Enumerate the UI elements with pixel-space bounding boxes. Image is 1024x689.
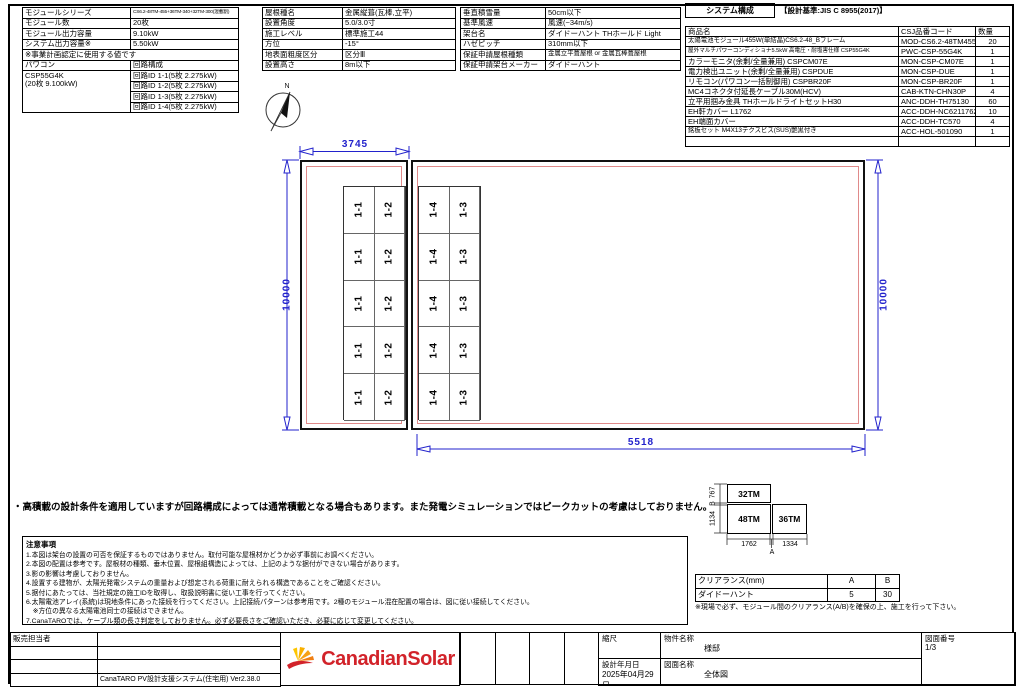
module-info-label: モジュール出力容量 [23, 29, 131, 40]
product-name [686, 137, 899, 147]
module-circuit-label: 1-4 [428, 202, 439, 218]
install-info-label: 基準風速 [461, 19, 546, 30]
module-circuit-label: 1-2 [384, 249, 395, 265]
csj-code: ACC-DDH-TC570 [899, 117, 976, 127]
clearance-dim-1762: 1762 [733, 541, 765, 548]
module-info-value: 20枚 [131, 19, 239, 30]
circuit-row: 回路ID 1-4(5枚 2.275kW) [131, 103, 239, 114]
clearance-value-a: 5 [828, 589, 876, 603]
dim-bottom-label: 5518 [612, 437, 670, 448]
clearance-gap-a-label: A [767, 549, 777, 556]
module-cell: 1-4 [419, 234, 450, 281]
csj-code: MON-CSP-CM07E [899, 57, 976, 67]
design-standard-label: 【設計基準:JIS C 8955(2017)】 [780, 5, 887, 16]
clearance-box-32tm: 32TM [727, 484, 771, 503]
dim-right-label: 10000 [879, 270, 890, 320]
module-cell: 1-1 [344, 281, 375, 328]
install-info-label: 保証申請架台メーカー [461, 61, 546, 72]
product-name: リモコン(パワコン一括制御用) CSPBR20F [686, 77, 899, 87]
date-label: 設計年月日 [602, 660, 657, 669]
system-config-header: CSJ品番コード [899, 27, 976, 37]
product-name: 太陽電池モジュール455W(単結晶)CS6.2-48_Bフレーム [686, 37, 899, 47]
note-line: 2.本図の配置は参考です。屋根材の種類、垂木位置、屋根組構造によっては、上記のよ… [26, 560, 684, 569]
module-cell: 1-2 [375, 281, 406, 328]
module-array-right: 1-41-31-41-31-41-31-41-31-41-3 [418, 186, 481, 420]
module-circuit-label: 1-3 [459, 342, 470, 358]
module-circuit-label: 1-4 [428, 249, 439, 265]
module-cell: 1-2 [375, 234, 406, 281]
roof-offset-line-right [417, 166, 859, 424]
csj-code: MON-CSP-BR20F [899, 77, 976, 87]
module-cell: 1-1 [344, 187, 375, 234]
csj-code: ANC-DDH-TH75130 [899, 97, 976, 107]
quantity: 4 [976, 117, 1010, 127]
property-cell: 物件名称 様邸 [661, 633, 922, 659]
quantity: 1 [976, 127, 1010, 137]
install-info-value: ダイドーハント [546, 61, 681, 72]
product-name: 屋外マルチパワーコンディショナ5.5kW 高電圧・耐塩害仕様 CSP55G4K [686, 47, 899, 57]
circuit-config-label: 回路構成 [131, 61, 239, 72]
note-line: 6.太陽電池アレイ(系統)は現地条件にあった接続を行ってください。上記接続パター… [26, 598, 684, 607]
module-circuit-label: 1-3 [459, 249, 470, 265]
roof-info-value: 金属縦葺(瓦棒,立平) [343, 8, 456, 19]
system-config-header: 数量 [976, 27, 1010, 37]
drawing-number-value: 1/3 [925, 643, 1011, 652]
module-cell: 1-3 [450, 374, 481, 421]
module-circuit-label: 1-4 [428, 342, 439, 358]
note-line: 5.据付にあたっては、当社規定の施工IDを取得し、取扱説明書に従い工事を行ってく… [26, 589, 684, 598]
module-cell: 1-4 [419, 187, 450, 234]
module-cell: 1-3 [450, 187, 481, 234]
roof-info-value: -15° [343, 40, 456, 51]
date-cell: 設計年月日 2025年04月29日 [599, 659, 661, 685]
drawing-number-label: 図面番号 [925, 634, 1011, 643]
approval-cell [565, 633, 600, 685]
install-info-value: ダイドーハント THホールド Light [546, 29, 681, 40]
module-cell: 1-3 [450, 327, 481, 374]
install-info-table: 垂直積雪量50cm以下基準風速風速(~34m/s)架台名ダイドーハント THホー… [460, 7, 681, 71]
pcs-label: パワコン [23, 61, 131, 72]
drawing-sheet: モジュールシリーズCS6.2-48TM-455+36TM-340+32TM-30… [0, 0, 1024, 689]
module-cell: 1-2 [375, 187, 406, 234]
module-circuit-label: 1-3 [459, 202, 470, 218]
module-cell: 1-1 [344, 374, 375, 421]
product-name: 電力検出ユニット(余剰/全量兼用) CSPDUE [686, 67, 899, 77]
product-name: EH端面カバー [686, 117, 899, 127]
install-info-label: 垂直積雪量 [461, 8, 546, 19]
roof-info-value: 区分Ⅲ [343, 50, 456, 61]
clearance-dim-1134: 1134 [710, 504, 717, 534]
system-config-table: 商品名CSJ品番コード数量太陽電池モジュール455W(単結晶)CS6.2-48_… [685, 26, 1010, 147]
csj-code: MOD-CS6.2-48TM455B [899, 37, 976, 47]
module-circuit-label: 1-1 [353, 202, 364, 218]
module-circuit-label: 1-4 [428, 296, 439, 312]
install-info-value: 50cm以下 [546, 8, 681, 19]
roof-info-value: 8m以下 [343, 61, 456, 72]
clearance-col-b: B [876, 575, 900, 589]
canadian-solar-logo: CanadianSolar [280, 632, 460, 686]
module-array-left: 1-11-21-11-21-11-21-11-21-11-2 [343, 186, 406, 420]
roof-info-label: 設置角度 [263, 19, 343, 30]
sales-table: 販売担当者 CanaTARO PV設計支援システム(住宅用) Ver2.38.0 [10, 632, 281, 687]
note-line: 7.CanaTAROでは、ケーブル類の長さ判定をしておりません。必ず必要長さをご… [26, 617, 684, 626]
roof-info-value: 5.0/3.0寸 [343, 19, 456, 30]
module-circuit-label: 1-3 [459, 389, 470, 405]
quantity: 1 [976, 47, 1010, 57]
module-circuit-label: 1-1 [353, 342, 364, 358]
clearance-row-maker: ダイドーハント [696, 589, 828, 603]
module-circuit-label: 1-2 [384, 296, 395, 312]
approval-cell [496, 633, 531, 685]
property-value: 様邸 [664, 643, 918, 654]
install-info-label: 架台名 [461, 29, 546, 40]
module-cell: 1-1 [344, 327, 375, 374]
sales-empty [98, 660, 281, 674]
quantity: 60 [976, 97, 1010, 107]
product-name: MC4コネクタ付延長ケーブル30M(HCV) [686, 87, 899, 97]
csj-code: ACC-HOL-501090 [899, 127, 976, 137]
note-line: 3.影の影響は考慮しておりません。 [26, 570, 684, 579]
sales-empty [11, 660, 98, 674]
quantity: 1 [976, 67, 1010, 77]
module-cell: 1-3 [450, 234, 481, 281]
roof-info-label: 屋根種名 [263, 8, 343, 19]
logo-wordmark: CanadianSolar [321, 648, 455, 671]
install-info-value: 310mm以下 [546, 40, 681, 51]
roof-info-label: 設置高さ [263, 61, 343, 72]
clearance-col-a: A [828, 575, 876, 589]
clearance-value-b: 30 [876, 589, 900, 603]
circuit-row: 回路ID 1-2(5枚 2.275kW) [131, 82, 239, 93]
module-info-label: モジュールシリーズ [23, 8, 131, 19]
install-info-label: ハゼピッチ [461, 40, 546, 51]
sales-empty [11, 647, 98, 661]
csj-code [899, 137, 976, 147]
csj-code: ACC-DDH-NC6211762 [899, 107, 976, 117]
module-circuit-label: 1-3 [459, 296, 470, 312]
highload-note: ・高積載の設計条件を適用していますが回路構成によっては通常積載となる場合もありま… [13, 499, 712, 513]
note-line: 4.設置する建物が、太陽光発電システムの重量および想定される荷重に耐えられる構造… [26, 579, 684, 588]
module-info-value: 5.50kW [131, 40, 239, 51]
approval-cell [461, 633, 496, 685]
module-circuit-label: 1-1 [353, 296, 364, 312]
clearance-box-36tm: 36TM [772, 504, 807, 534]
clearance-table-header: クリアランス(mm) [696, 575, 828, 589]
scale-label: 縮尺 [602, 634, 657, 643]
notes-box: 注意事項 1.本図は架台の設置の可否を保証するものではありません。取付可能な屋根… [22, 536, 688, 625]
notes-lines: 1.本図は架台の設置の可否を保証するものではありません。取付可能な屋根材かどうか… [26, 551, 684, 626]
module-cell: 1-4 [419, 281, 450, 328]
module-circuit-label: 1-1 [353, 389, 364, 405]
module-circuit-label: 1-4 [428, 389, 439, 405]
sales-value [98, 633, 281, 647]
approval-cells [460, 632, 599, 685]
quantity: 10 [976, 107, 1010, 117]
software-version: CanaTARO PV設計支援システム(住宅用) Ver2.38.0 [98, 674, 281, 688]
csj-code: MON-CSP-DUE [899, 67, 976, 77]
module-circuit-label: 1-2 [384, 202, 395, 218]
sales-empty [11, 674, 98, 688]
install-info-value: 風速(~34m/s) [546, 19, 681, 30]
install-info-value: 金属立平葺屋根 or 金属瓦棒葺屋根 [546, 50, 681, 61]
notes-title: 注意事項 [26, 539, 684, 550]
pcs-name: CSP55G4K (20枚 9.100kW) [23, 71, 131, 113]
circuit-row: 回路ID 1-1(5枚 2.275kW) [131, 71, 239, 82]
roof-info-table: 屋根種名金属縦葺(瓦棒,立平)設置角度5.0/3.0寸施工レベル標準施工44方位… [262, 7, 456, 71]
date-value: 2025年04月29日 [602, 669, 657, 685]
module-circuit-label: 1-2 [384, 389, 395, 405]
sales-label: 販売担当者 [11, 633, 98, 647]
csj-code: CAB-KTN-CHN30P [899, 87, 976, 97]
product-name: EH軒カバー L1762 [686, 107, 899, 117]
roof-info-label: 施工レベル [263, 29, 343, 40]
csj-code: PWC-CSP-55G4K [899, 47, 976, 57]
approval-cell [530, 633, 565, 685]
clearance-dim-1334: 1334 [774, 541, 806, 548]
product-name: 銘板セット M4X13テクスビス(SUS)艶黒付き [686, 127, 899, 137]
install-info-label: 保証申請屋根種類 [461, 50, 546, 61]
clearance-box-48tm: 48TM [727, 504, 771, 534]
quantity [976, 137, 1010, 147]
product-name: 立平用掴み金具 THホールドライトセットH30 [686, 97, 899, 107]
product-name: カラーモニタ(余剰/全量兼用) CSPCM07E [686, 57, 899, 67]
quantity: 1 [976, 77, 1010, 87]
module-cell: 1-2 [375, 374, 406, 421]
quantity: 20 [976, 37, 1010, 47]
module-info-value: 9.10kW [131, 29, 239, 40]
system-config-header: 商品名 [686, 27, 899, 37]
module-cell: 1-4 [419, 374, 450, 421]
title-block: 縮尺 物件名称 様邸 図面番号 1/3 設計年月日 2025年04月29日 図面… [598, 632, 1016, 686]
dim-left-label: 10000 [282, 270, 293, 320]
circuit-row: 回路ID 1-3(5枚 2.275kW) [131, 92, 239, 103]
business-plan-note: ※事業計画認定に使用する値です [23, 50, 239, 61]
note-line: ※方位の異なる太陽電池同士の接続はできません。 [26, 607, 684, 616]
sun-icon [285, 645, 317, 673]
module-info-label: モジュール数 [23, 19, 131, 30]
module-cell: 1-1 [344, 234, 375, 281]
clearance-note: ※現場で必ず、モジュール間のクリアランス(A/B)を確保の上、施工を行って下さい… [695, 602, 960, 612]
clearance-table: クリアランス(mm) A B ダイドーハント 5 30 [695, 574, 900, 602]
note-line: 1.本図は架台の設置の可否を保証するものではありません。取付可能な屋根材かどうか… [26, 551, 684, 560]
drawing-name-label: 図面名称 [664, 660, 918, 669]
module-circuit-label: 1-1 [353, 249, 364, 265]
roof-info-label: 地表面粗度区分 [263, 50, 343, 61]
module-info-value: CS6.2-48TM-455+36TM-340+32TM-300(混載割) [131, 8, 239, 19]
module-circuit-label: 1-2 [384, 342, 395, 358]
module-cell: 1-2 [375, 327, 406, 374]
module-info-label: システム出力容量※ [23, 40, 131, 51]
system-config-title: システム構成 [685, 3, 775, 18]
module-info-table: モジュールシリーズCS6.2-48TM-455+36TM-340+32TM-30… [22, 7, 239, 113]
roof-info-value: 標準施工44 [343, 29, 456, 40]
scale-cell: 縮尺 [599, 633, 661, 659]
drawing-name-value: 全体図 [664, 669, 918, 680]
drawing-number-cell: 図面番号 1/3 [922, 633, 1015, 685]
sales-empty [98, 647, 281, 661]
dim-top-label: 3745 [330, 139, 380, 150]
roof-info-label: 方位 [263, 40, 343, 51]
drawing-name-cell: 図面名称 全体図 [661, 659, 922, 685]
quantity: 1 [976, 57, 1010, 67]
quantity: 4 [976, 87, 1010, 97]
property-label: 物件名称 [664, 634, 918, 643]
module-cell: 1-4 [419, 327, 450, 374]
module-cell: 1-3 [450, 281, 481, 328]
